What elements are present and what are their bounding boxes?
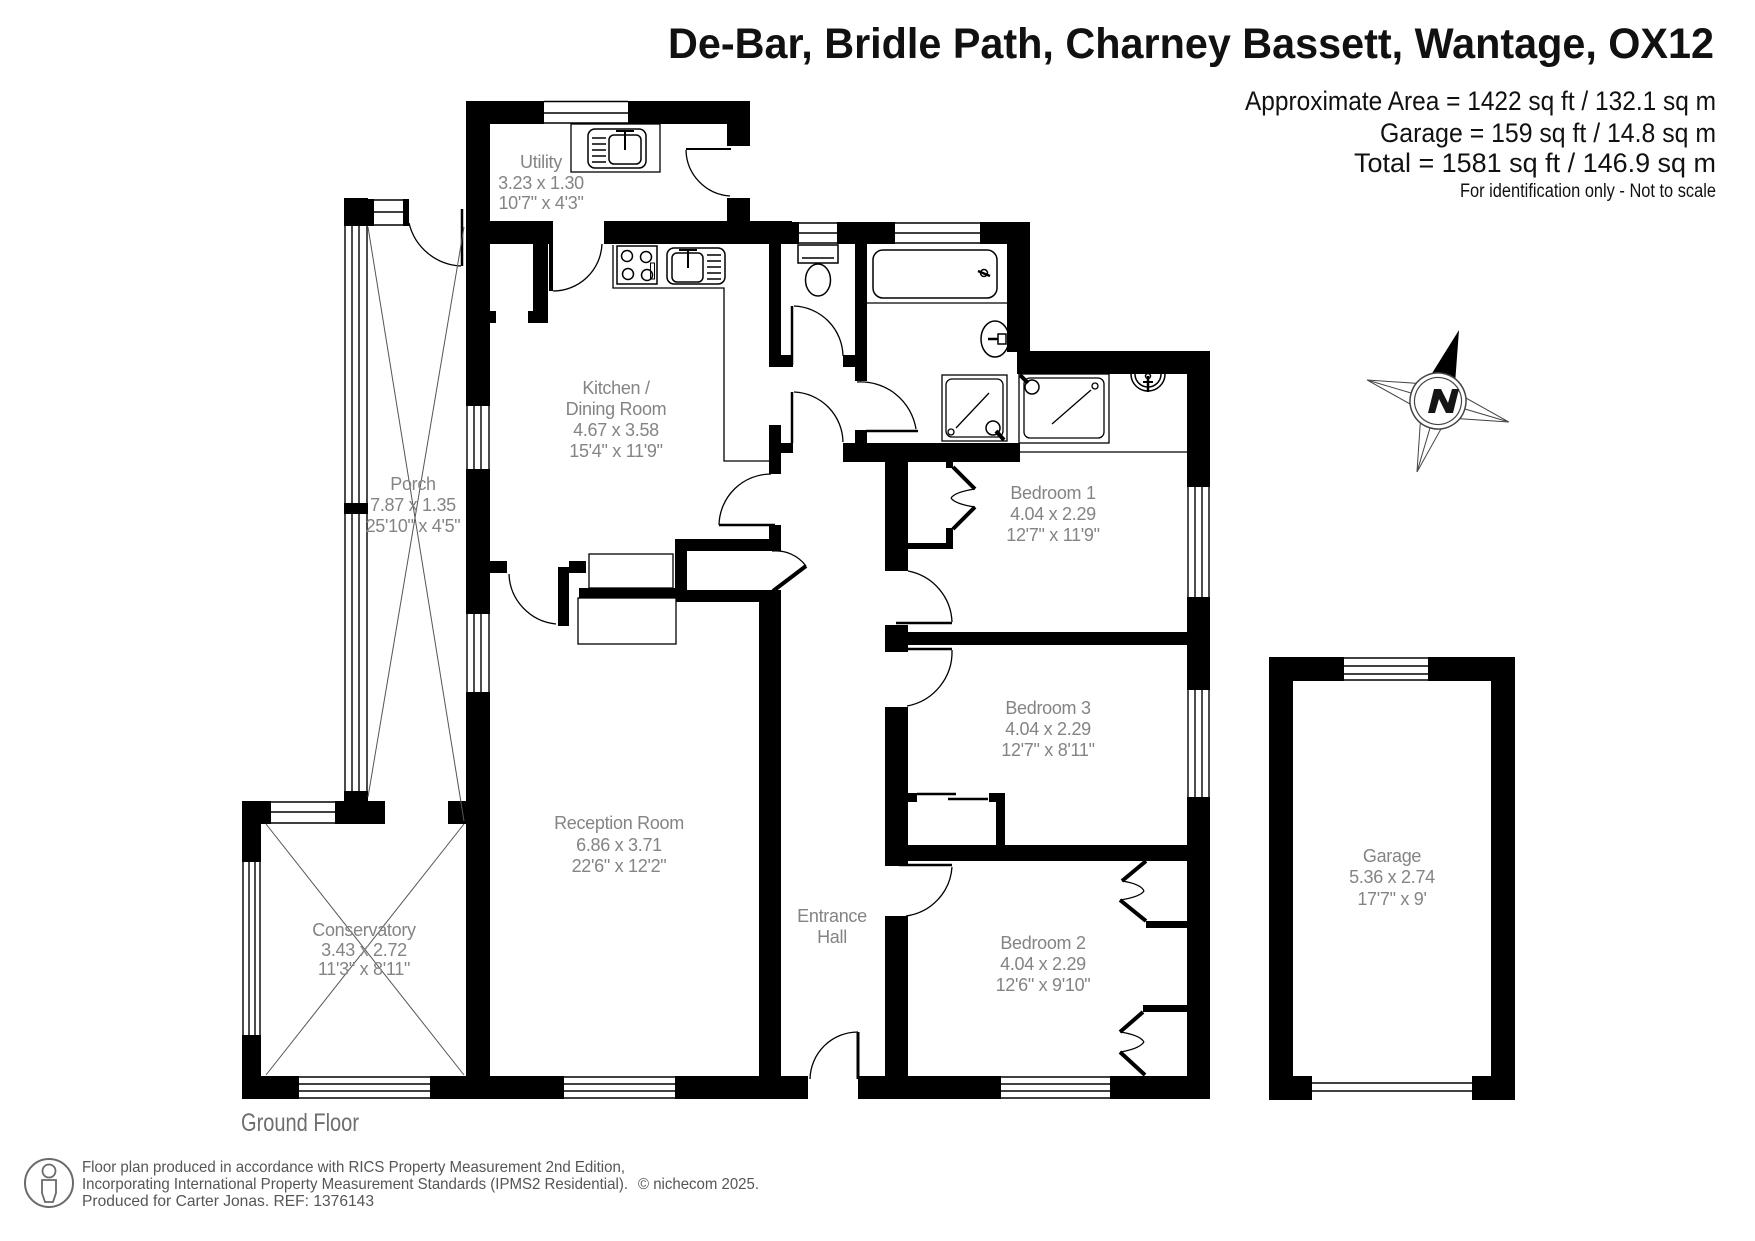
svg-text:3.23 x 1.30: 3.23 x 1.30 — [498, 173, 584, 193]
svg-text:12'7" x 11'9": 12'7" x 11'9" — [1006, 525, 1099, 545]
svg-text:Produced for Carter Jonas. R: Produced for Carter Jonas. REF: 1376143 — [82, 1193, 374, 1210]
svg-text:6.86 x 3.71: 6.86 x 3.71 — [576, 835, 662, 855]
svg-text:22'6" x 12'2": 22'6" x 12'2" — [572, 856, 667, 876]
svg-text:Approximate Area = 1422 sq ft: Approximate Area = 1422 sq ft / 132.1 sq… — [1245, 86, 1716, 116]
svg-text:© nichecom 2025.: © nichecom 2025. — [638, 1176, 759, 1193]
svg-text:7.87 x 1.35: 7.87 x 1.35 — [370, 495, 456, 515]
svg-text:25'10" x 4'5": 25'10" x 4'5" — [366, 516, 461, 536]
svg-text:Reception Room: Reception Room — [554, 813, 684, 833]
svg-text:Garage = 159 sq ft / 14.8 sq m: Garage = 159 sq ft / 14.8 sq m — [1380, 118, 1716, 148]
svg-text:17'7" x 9': 17'7" x 9' — [1357, 889, 1426, 909]
svg-text:12'6" x 9'10": 12'6" x 9'10" — [996, 975, 1091, 995]
svg-text:15'4" x 11'9": 15'4" x 11'9" — [569, 441, 662, 461]
svg-text:For identification only - Not: For identification only - Not to scale — [1460, 181, 1716, 202]
svg-text:Bedroom 3: Bedroom 3 — [1005, 698, 1091, 718]
svg-text:Utility: Utility — [520, 152, 562, 172]
svg-text:4.67 x 3.58: 4.67 x 3.58 — [573, 420, 659, 440]
svg-text:Hall: Hall — [817, 927, 847, 947]
svg-text:12'7" x 8'11": 12'7" x 8'11" — [1001, 740, 1094, 760]
svg-text:Bedroom 2: Bedroom 2 — [1000, 933, 1086, 953]
svg-text:10'7" x 4'3": 10'7" x 4'3" — [498, 193, 583, 213]
svg-text:5.36 x 2.74: 5.36 x 2.74 — [1349, 867, 1435, 887]
svg-text:Bedroom 1: Bedroom 1 — [1010, 483, 1096, 503]
svg-text:Entrance: Entrance — [797, 906, 867, 926]
svg-text:11'3" x 8'11": 11'3" x 8'11" — [318, 959, 410, 979]
svg-text:Dining Room: Dining Room — [566, 399, 667, 419]
svg-text:Garage: Garage — [1363, 846, 1422, 866]
svg-text:3.43 x 2.72: 3.43 x 2.72 — [321, 940, 407, 960]
svg-text:4.04 x 2.29: 4.04 x 2.29 — [1010, 504, 1096, 524]
svg-text:Ground Floor: Ground Floor — [241, 1109, 359, 1137]
svg-text:Floor plan produced in accorda: Floor plan produced in accordance with R… — [82, 1159, 625, 1176]
svg-text:Total = 1581 sq ft / 146.9 sq: Total = 1581 sq ft / 146.9 sq m — [1354, 148, 1716, 178]
svg-text:De-Bar, Bridle Path, Charney B: De-Bar, Bridle Path, Charney Bassett, Wa… — [668, 20, 1714, 68]
svg-text:Incorporating International Pr: Incorporating International Property Mea… — [82, 1176, 628, 1193]
svg-text:Kitchen /: Kitchen / — [582, 378, 650, 398]
svg-text:Conservatory: Conservatory — [312, 920, 416, 940]
svg-text:4.04 x 2.29: 4.04 x 2.29 — [1005, 719, 1091, 739]
svg-text:4.04 x 2.29: 4.04 x 2.29 — [1000, 954, 1086, 974]
svg-text:Porch: Porch — [390, 474, 436, 494]
